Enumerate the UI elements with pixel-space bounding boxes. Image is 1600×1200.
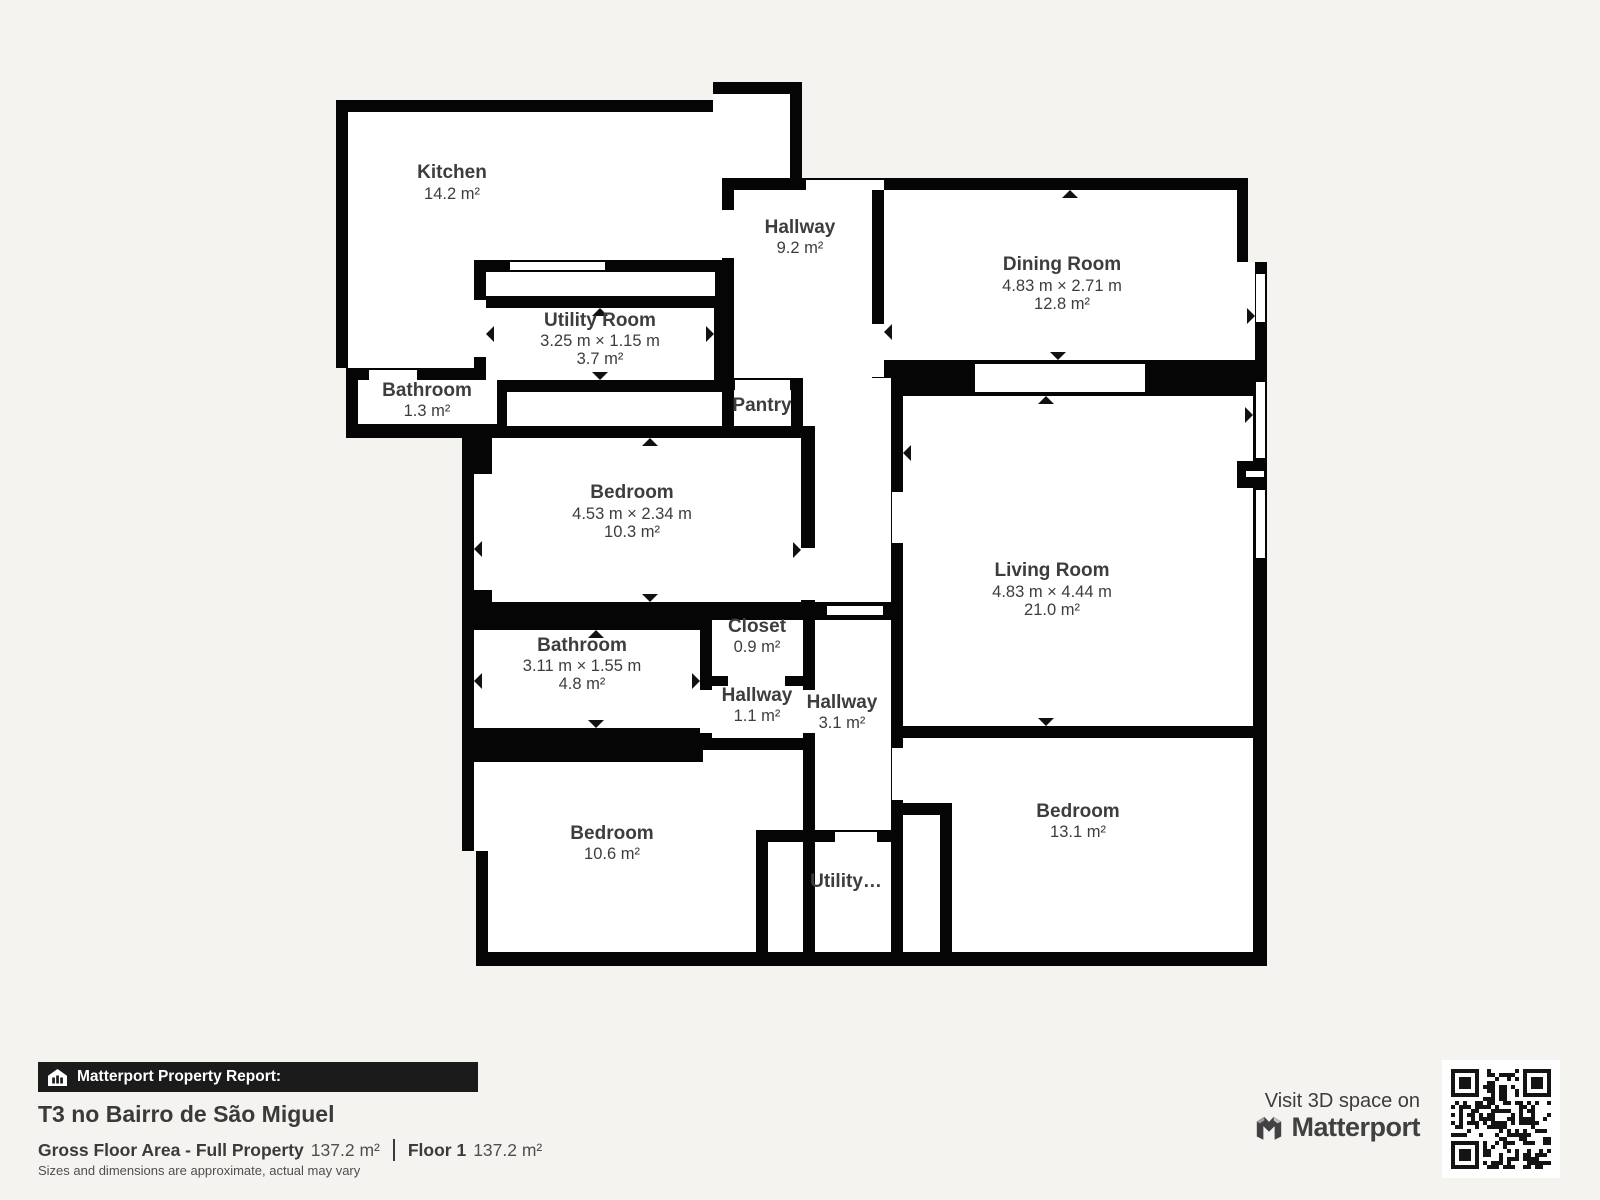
bathroom-small-door <box>369 370 417 380</box>
room-name-utility-small: Utility… <box>810 871 882 892</box>
divider <box>393 1139 395 1161</box>
floor-plan: Kitchen 14.2 m² Hallway 9.2 m² Dining Ro… <box>0 0 1600 1200</box>
room-dims-utility-room: 3.25 m × 1.15 m <box>540 332 660 350</box>
gfa-value: 137.2 m² <box>311 1140 380 1161</box>
shaft-left <box>768 842 803 952</box>
matterport-wordmark: Matterport <box>1292 1112 1421 1143</box>
matterport-brand: Matterport <box>1120 1112 1420 1143</box>
floor-value: 137.2 m² <box>473 1140 542 1161</box>
room-floor-bedroom-bottom-right <box>903 738 1253 952</box>
room-name-utility-room: Utility Room <box>544 310 656 331</box>
pantry-door <box>735 380 790 390</box>
house-icon <box>48 1069 67 1086</box>
hallway-dining-door <box>872 324 884 377</box>
room-name-living: Living Room <box>994 560 1109 581</box>
room-area-bathroom-small: 1.3 m² <box>404 402 451 420</box>
page: Kitchen 14.2 m² Hallway 9.2 m² Dining Ro… <box>0 0 1600 1200</box>
bedroom-middle-door <box>801 548 815 600</box>
duct-strip-lower <box>507 392 722 426</box>
room-dims-living: 4.83 m × 4.44 m <box>992 583 1112 601</box>
room-floor-dining <box>884 190 1255 360</box>
room-name-bathroom-small: Bathroom <box>382 380 472 401</box>
disclaimer-text: Sizes and dimensions are approximate, ac… <box>38 1163 360 1178</box>
room-area-kitchen: 14.2 m² <box>424 185 480 203</box>
room-name-hallway-small: Hallway <box>722 685 793 706</box>
dining-window <box>1256 274 1265 322</box>
dining-living-opening <box>975 364 1145 392</box>
room-name-kitchen: Kitchen <box>417 162 487 183</box>
utility-small-door <box>835 832 877 842</box>
room-area-hallway-mid: 3.1 m² <box>819 714 866 732</box>
living-window-lower <box>1256 490 1265 558</box>
corridor-door <box>827 606 883 615</box>
room-area-living: 21.0 m² <box>1024 601 1080 619</box>
kitchen-utility-door <box>474 300 486 357</box>
living-window-upper <box>1256 382 1265 458</box>
room-area-utility-room: 3.7 m² <box>577 350 624 368</box>
room-area-bedroom-bottom-left: 10.6 m² <box>584 845 640 863</box>
room-area-hallway-small: 1.1 m² <box>734 707 781 725</box>
kitchen-hallway-door <box>722 210 734 258</box>
matterport-logo-icon <box>1254 1113 1284 1143</box>
qr-code <box>1442 1060 1560 1178</box>
room-dims-bedroom-middle: 4.53 m × 2.34 m <box>572 505 692 523</box>
room-area-bedroom-bottom-right: 13.1 m² <box>1050 823 1106 841</box>
living-door <box>892 492 903 543</box>
shaft-right <box>903 815 940 952</box>
corridor-upper <box>803 378 891 602</box>
room-name-pantry: Pantry <box>732 395 792 416</box>
bedroom-bottom-right-door <box>892 748 903 800</box>
room-area-dining: 12.8 m² <box>1034 295 1090 313</box>
room-name-bedroom-middle: Bedroom <box>590 482 673 503</box>
property-title: T3 no Bairro de São Miguel <box>38 1101 334 1128</box>
room-name-hallway-top: Hallway <box>765 217 836 238</box>
floor-area-line: Gross Floor Area - Full Property 137.2 m… <box>38 1139 542 1161</box>
duct-strip-upper <box>486 272 715 296</box>
room-area-bathroom-middle: 4.8 m² <box>559 675 606 693</box>
room-area-closet: 0.9 m² <box>734 638 781 656</box>
entrance-door-opening <box>806 180 884 190</box>
room-name-closet: Closet <box>728 616 787 637</box>
report-label: Matterport Property Report: <box>77 1068 281 1086</box>
room-area-hallway-top: 9.2 m² <box>777 239 824 257</box>
room-area-bedroom-middle: 10.3 m² <box>604 523 660 541</box>
kitchen-strip-window <box>510 262 605 270</box>
bathroom-middle-door <box>700 690 712 733</box>
room-name-bedroom-bottom-right: Bedroom <box>1036 801 1119 822</box>
room-dims-dining: 4.83 m × 2.71 m <box>1002 277 1122 295</box>
room-dims-bathroom-middle: 3.11 m × 1.55 m <box>523 657 641 675</box>
room-name-bathroom-middle: Bathroom <box>537 635 627 656</box>
visit-3d-label: Visit 3D space on <box>1120 1090 1420 1113</box>
floor-label: Floor 1 <box>408 1140 466 1161</box>
report-header-bar: Matterport Property Report: <box>38 1062 478 1092</box>
room-name-bedroom-bottom-left: Bedroom <box>570 823 653 844</box>
gfa-label: Gross Floor Area - Full Property <box>38 1140 304 1161</box>
living-wall-notch-slot <box>1246 471 1264 477</box>
room-name-dining: Dining Room <box>1003 254 1121 275</box>
room-name-hallway-mid: Hallway <box>807 692 878 713</box>
room-floor-utility-small <box>815 842 891 952</box>
